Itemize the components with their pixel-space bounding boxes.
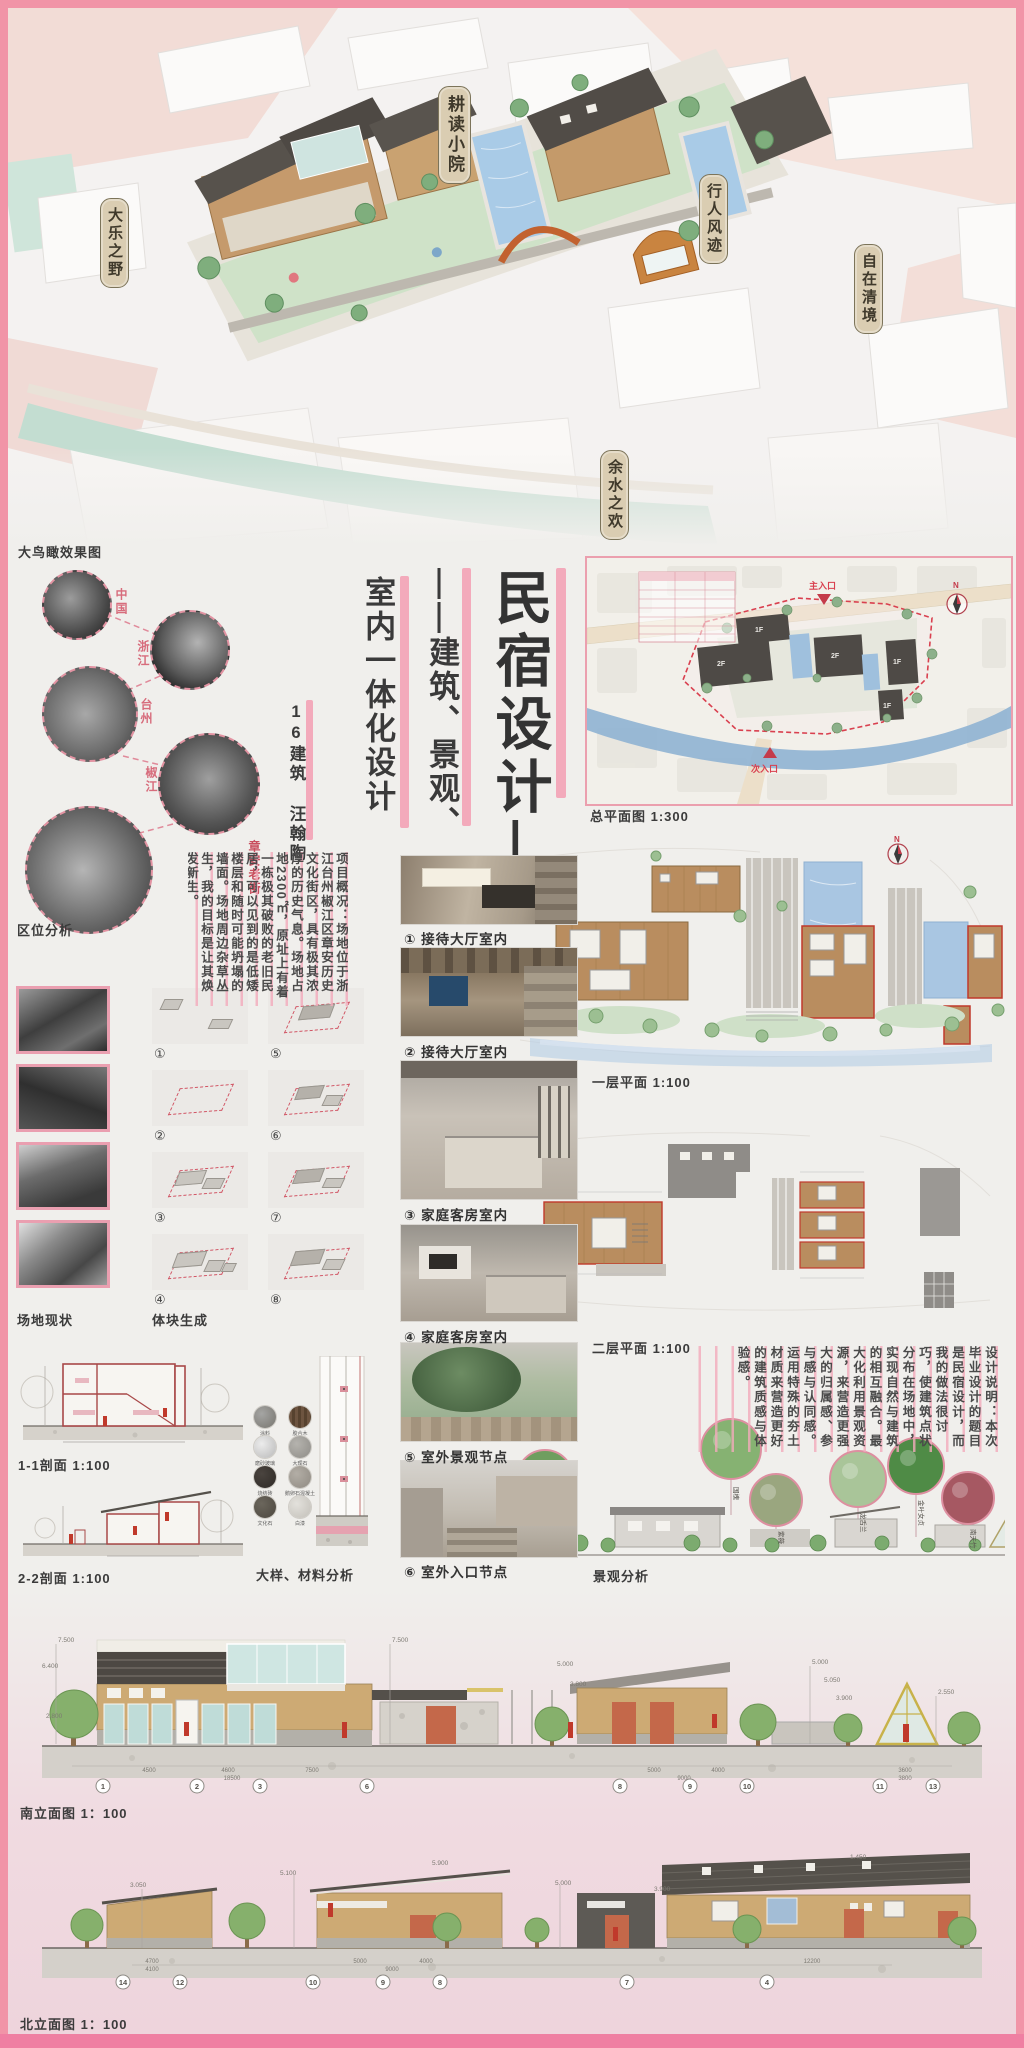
dim-n-5: 1.450 (850, 1854, 867, 1861)
material-4 (289, 1436, 311, 1458)
section-1-caption: 1-1剖面 1:100 (18, 1455, 111, 1474)
photo-shelf-wall (524, 966, 577, 1036)
materials-caption: 大样、材料分析 (256, 1565, 354, 1584)
second-floor-caption: 二层平面 1:100 (592, 1338, 691, 1357)
span-s-5: 4000 (711, 1768, 725, 1774)
first-floor-caption: 一层平面 1:100 (592, 1072, 691, 1091)
plan-tag-2f-a: 2F (717, 661, 726, 668)
frame-left (0, 0, 8, 2048)
design-note: 设计说明：本次毕业设计的题目是民宿设计，而我的做法很讨巧，使建筑点状分布在场地中… (698, 1346, 998, 1452)
dim-s-9: 2.550 (938, 1689, 955, 1696)
north-elevation-caption: 北立面图 1：100 (20, 2014, 128, 2033)
poster-title: 民宿设计— (490, 568, 547, 883)
photo-tv (429, 1254, 457, 1269)
material-1 (254, 1406, 276, 1428)
span-s-1: 4600 (221, 1768, 235, 1774)
photo-bed (445, 1136, 542, 1188)
dim-n-3: 5.000 (555, 1880, 572, 1887)
photo-reception-2 (400, 947, 578, 1037)
grid-s-8: 8 (618, 1782, 622, 1791)
dim-s-8: 3.900 (836, 1695, 853, 1702)
span-n-2: 5000 (353, 1959, 367, 1965)
span-n-1: 4100 (145, 1967, 159, 1973)
section-2-caption: 2-2剖面 1:100 (18, 1568, 111, 1587)
plant-label-3: 紫薇 (777, 1531, 786, 1545)
photo-desk (482, 885, 542, 908)
massing-step-2 (152, 1070, 248, 1126)
span-s-4: 5000 (647, 1768, 661, 1774)
site-plan-table (639, 572, 735, 642)
photo-beam (401, 1061, 577, 1078)
massing-step-6 (268, 1070, 364, 1126)
render-label-serenity: 自在清境 (854, 244, 883, 334)
site-photo-1 (16, 986, 110, 1054)
frame-top (0, 0, 1024, 8)
map-circle-jiaojiang (158, 733, 260, 835)
photo-guestroom-1 (400, 1060, 578, 1200)
plan-tag-1f-a: 1F (755, 627, 764, 634)
poster-subtitle-1: ——建筑、景观、 (424, 568, 458, 840)
massing-num-7: ⑦ (270, 1210, 282, 1226)
map-circle-old-street (25, 806, 153, 934)
massing-num-5: ⑤ (270, 1046, 282, 1062)
render-label-water-joy: 余水之欢 (600, 450, 629, 540)
photo-screen (429, 976, 468, 1006)
photo-caption-1: ① 接待大厅室内 (404, 928, 508, 948)
span-n-3: 4000 (419, 1959, 433, 1965)
map-label-china: 中国 (115, 588, 127, 616)
dim-s-2: 2.800 (46, 1713, 63, 1720)
dim-s-4: 5.000 (557, 1661, 574, 1668)
photo-landscape-node (400, 1342, 578, 1442)
render-label-trace: 行人风迹 (699, 174, 728, 264)
photo-deck (401, 1417, 577, 1441)
massing-num-6: ⑥ (270, 1128, 282, 1144)
grid-n-14: 14 (119, 1978, 128, 1987)
dim-n-1: 5.100 (280, 1870, 297, 1877)
material-6 (289, 1466, 311, 1488)
aerial-caption: 大鸟瞰效果图 (18, 542, 102, 561)
project-overview: 项目概况：场地位于浙江台州椒江区章安历史文化街区，具有极其浓厚的历史气息。场地占… (188, 852, 348, 1006)
dim-s-6: 5.000 (812, 1659, 829, 1666)
grid-n-7: 7 (625, 1978, 629, 1987)
dim-s-3: 7.500 (392, 1637, 409, 1644)
main-entry-label: 主入口 (809, 580, 836, 591)
map-circle-zhejiang (150, 610, 230, 690)
span-s-7: 3600 (898, 1768, 912, 1774)
photo-reception-1 (400, 855, 578, 925)
plant-label-2: 国槐 (732, 1487, 741, 1501)
render-label-text: 耕读小院 (445, 95, 464, 175)
grid-s-11: 11 (876, 1782, 884, 1791)
south-elevation-caption: 南立面图 1：100 (20, 1803, 128, 1822)
material-5 (254, 1466, 276, 1488)
map-label-taizhou: 台州 (140, 698, 152, 726)
site-photo-2 (16, 1064, 110, 1132)
grid-s-13: 13 (929, 1782, 937, 1791)
photo-guestroom-2 (400, 1224, 578, 1322)
site-photo-4 (16, 1220, 110, 1288)
grid-n-9: 9 (381, 1978, 385, 1987)
map-circle-taizhou (42, 666, 138, 762)
material-8 (289, 1496, 311, 1518)
site-plan-caption: 总平面图 1:300 (590, 806, 689, 825)
author: 16建筑 汪翰陶 (284, 703, 308, 864)
title-bar-2 (462, 568, 471, 826)
photo-caption-6: ⑥ 室外入口节点 (404, 1561, 508, 1581)
poster-subtitle-2: 室内一体化设计 (360, 576, 394, 814)
dim-s-0: 7.500 (58, 1637, 75, 1644)
span-n-0: 4700 (145, 1959, 159, 1965)
massing-num-3: ③ (154, 1210, 166, 1226)
grid-n-8: 8 (438, 1978, 442, 1987)
photo-building-right (496, 1476, 577, 1526)
span-s-2: 7500 (305, 1768, 319, 1774)
photo-wall-left (401, 1488, 443, 1557)
landscape-caption: 景观分析 (593, 1566, 649, 1585)
title-bar-3 (400, 576, 409, 828)
grid-n-10: 10 (309, 1978, 317, 1987)
map-label-zhejiang: 浙江 (137, 640, 149, 668)
massing-num-1: ① (154, 1046, 166, 1062)
grid-n-12: 12 (176, 1978, 184, 1987)
photo-caption-5: ⑤ 室外景观节点 (404, 1446, 508, 1466)
plan-tag-2f-b: 2F (831, 653, 840, 660)
grid-s-3: 3 (258, 1782, 262, 1791)
plan-tag-1f-c: 1F (883, 703, 892, 710)
massing-step-8 (268, 1234, 364, 1290)
span-s-0: 4500 (142, 1768, 156, 1774)
title-bar-1 (556, 568, 566, 798)
section-1-1 (15, 1350, 250, 1450)
map-circle-china (42, 570, 112, 640)
north-elevation: 3.050 5.100 5.900 5.000 3.900 1.450 4700… (12, 1843, 1012, 2003)
photo-path (447, 1528, 517, 1557)
map-label-jiaojiang: 椒江 (145, 766, 157, 794)
material-2 (289, 1406, 311, 1428)
grid-s-1: 1 (101, 1782, 105, 1791)
material-3 (254, 1436, 276, 1458)
dim-n-0: 3.050 (130, 1882, 147, 1889)
photo-caption-4: ④ 家庭客房室内 (404, 1326, 508, 1346)
photo-tree-crown (412, 1347, 521, 1412)
grid-s-6: 6 (365, 1782, 369, 1791)
plant-label-4: 龙舌兰 (859, 1513, 868, 1533)
plant-label-5: 金叶女贞 (917, 1500, 926, 1527)
location-caption: 区位分析 (17, 920, 73, 939)
span-s-3: 18500 (224, 1776, 241, 1782)
grid-s-9: 9 (688, 1782, 692, 1791)
render-label-courtyard: 耕读小院 (438, 86, 471, 184)
grid-s-10: 10 (743, 1782, 751, 1791)
frame-bottom (0, 2034, 1024, 2048)
massing-step-3 (152, 1152, 248, 1208)
site-photo-3 (16, 1142, 110, 1210)
south-elevation: 7.500 6.400 2.800 7.500 5.000 3.800 5.00… (12, 1626, 1012, 1804)
massing-step-7 (268, 1152, 364, 1208)
render-label-field: 大乐之野 (100, 198, 129, 288)
span-n-4: 9000 (385, 1967, 399, 1973)
plant-label-6: 南天竹 (969, 1529, 978, 1549)
massing-step-4 (152, 1234, 248, 1290)
massing-num-2: ② (154, 1128, 166, 1144)
photo-shelves (535, 856, 577, 924)
plan-tag-1f-b: 1F (893, 659, 902, 666)
massing-num-4: ④ (154, 1292, 166, 1308)
photo-bed-2 (486, 1275, 567, 1313)
dim-n-4: 3.900 (654, 1886, 671, 1893)
material-7 (254, 1496, 276, 1518)
dim-n-2: 5.900 (432, 1860, 449, 1867)
photo-screen-window (538, 1086, 570, 1158)
photo-caption-2: ② 接待大厅室内 (404, 1041, 508, 1061)
dim-s-7: 5.050 (824, 1677, 841, 1684)
site-plan: 1F 2F 2F 1F 1F 主入口 次入口 N (585, 556, 1013, 806)
photo-entry-node (400, 1460, 578, 1558)
massing-caption: 体块生成 (152, 1310, 208, 1329)
site-north-label: N (953, 581, 959, 590)
frame-right (1016, 0, 1024, 2048)
span-s-8: 3800 (898, 1776, 912, 1782)
dim-s-5: 3.800 (570, 1681, 587, 1688)
span-n-5: 12200 (804, 1959, 821, 1965)
photo-window (422, 868, 491, 886)
presentation-board: 耕读小院 大乐之野 行人风迹 自在清境 余水之欢 大鸟瞰效果图 中国 浙江 台州… (0, 0, 1024, 2048)
wall-detail (316, 1356, 374, 1558)
massing-num-8: ⑧ (270, 1292, 282, 1308)
dim-s-1: 6.400 (42, 1663, 59, 1670)
photo-caption-3: ③ 家庭客房室内 (404, 1204, 508, 1224)
site-photos-caption: 场地现状 (17, 1310, 73, 1329)
grid-s-2: 2 (195, 1782, 199, 1791)
section-2-2 (15, 1486, 250, 1564)
plan1-north-label: N (894, 835, 900, 844)
side-entry-label: 次入口 (751, 763, 778, 774)
